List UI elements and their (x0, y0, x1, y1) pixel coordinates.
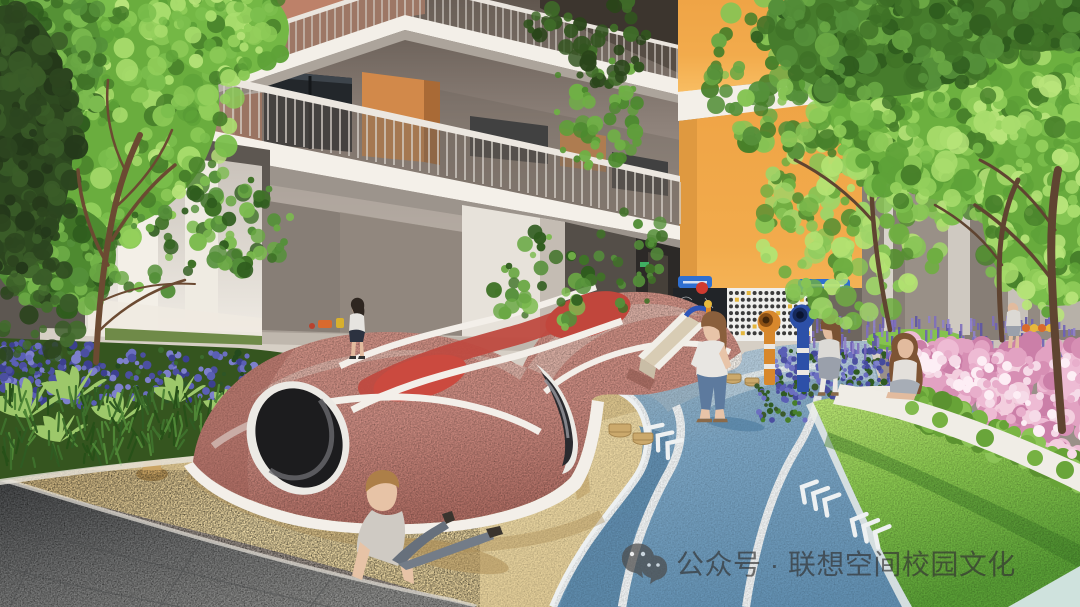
svg-text:公众号 · 联想空间校园文化: 公众号 · 联想空间校园文化 (676, 549, 1016, 580)
